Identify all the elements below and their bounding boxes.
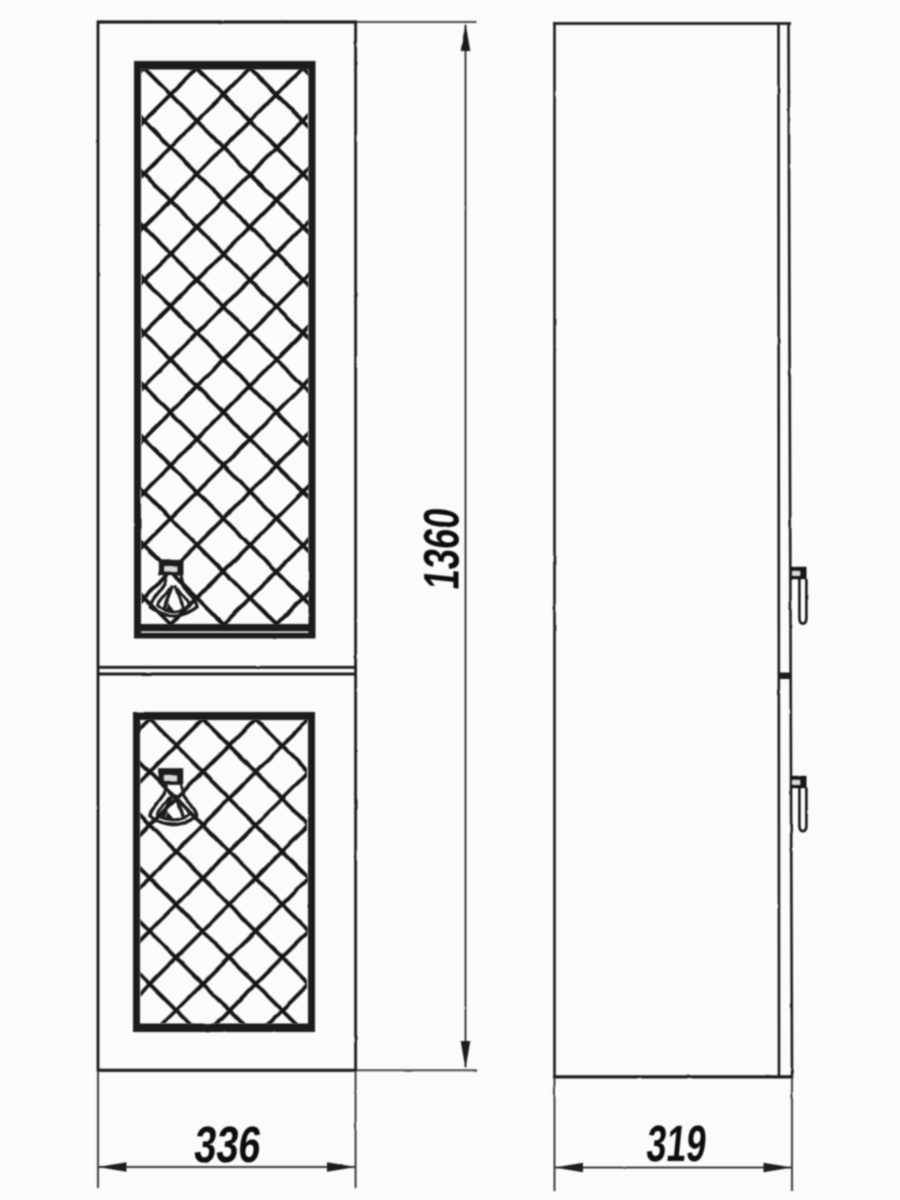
svg-text:1360: 1360 xyxy=(414,505,470,592)
svg-text:319: 319 xyxy=(644,1116,709,1173)
svg-text:336: 336 xyxy=(192,1115,265,1173)
